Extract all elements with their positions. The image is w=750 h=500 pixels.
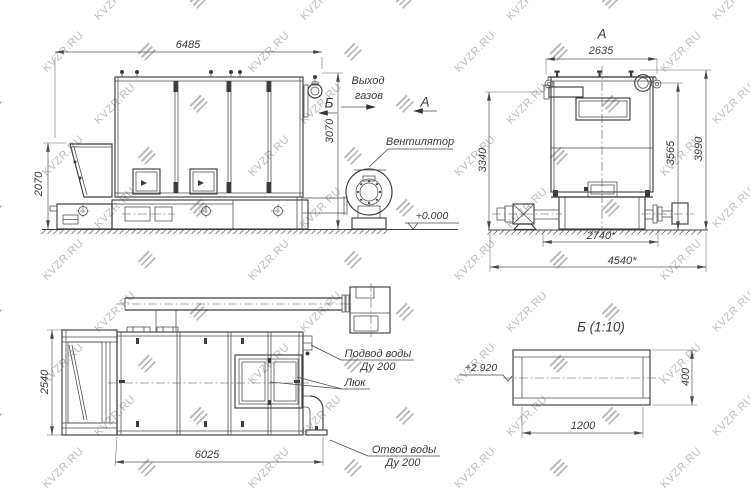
plan-view — [47, 283, 440, 466]
water-outlet-elbow — [303, 396, 327, 435]
plan-dimensions — [47, 330, 323, 466]
hopper-plan — [62, 330, 117, 435]
ground-hatching — [42, 230, 389, 235]
side-annotations — [319, 107, 459, 229]
flue-duct — [116, 295, 352, 332]
hatch-covers — [235, 355, 302, 408]
water-inlet-stub — [303, 336, 312, 356]
fan-drawing — [346, 169, 392, 229]
section-b — [459, 350, 697, 438]
ground-hatching — [488, 230, 703, 235]
base-frame — [50, 197, 308, 229]
lifting-lugs — [120, 70, 242, 77]
fuel-hopper — [70, 144, 112, 197]
side-view — [42, 52, 460, 234]
fan-plan — [350, 283, 390, 337]
front-dimensions — [485, 59, 711, 272]
section-dimensions — [522, 350, 697, 438]
drawing-linework — [0, 0, 750, 500]
drive-assembly — [642, 203, 694, 224]
side-dimensions — [43, 52, 343, 229]
gas-outlet-flange — [304, 75, 322, 117]
feeder-assembly — [492, 204, 562, 230]
front-view-a — [485, 59, 711, 272]
boiler-technical-drawing: KVZR.RUKVZR.RUKVZR.RUKVZR.RUKVZR.RUKVZR.… — [0, 0, 750, 500]
